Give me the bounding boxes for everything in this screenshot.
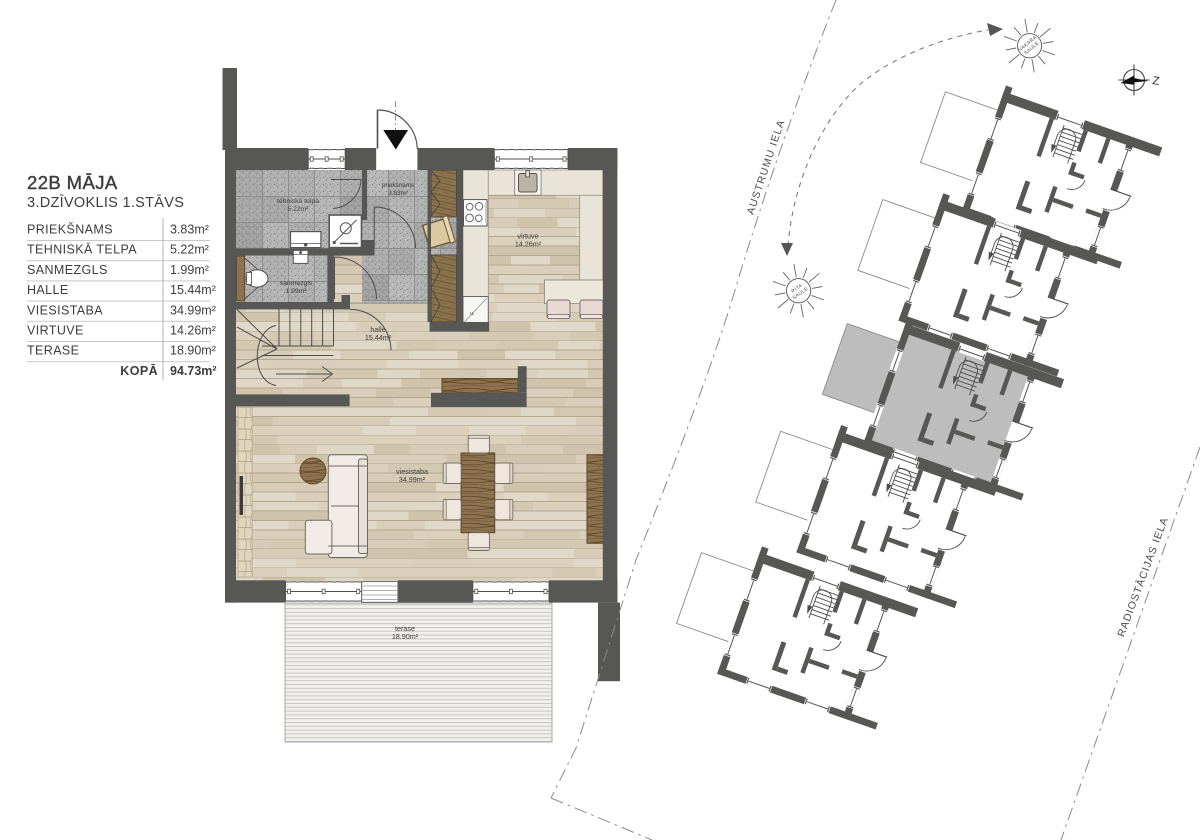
svg-text:14.26m²: 14.26m² xyxy=(170,324,216,338)
svg-text:5.22m²: 5.22m² xyxy=(170,243,209,257)
svg-text:HALLE: HALLE xyxy=(27,283,69,297)
svg-text:tehniskā telpa: tehniskā telpa xyxy=(277,198,319,205)
svg-text:5.22m²: 5.22m² xyxy=(287,206,309,213)
svg-text:KOPĀ: KOPĀ xyxy=(120,364,158,378)
svg-text:PRIEKŠNAMS: PRIEKŠNAMS xyxy=(27,222,113,237)
svg-text:34.99m²: 34.99m² xyxy=(170,303,216,317)
svg-text:priekšnams: priekšnams xyxy=(382,182,414,189)
svg-text:VIESISTABA: VIESISTABA xyxy=(27,303,103,317)
svg-text:1.99m²: 1.99m² xyxy=(170,263,209,277)
svg-text:18.90m²: 18.90m² xyxy=(170,344,216,358)
svg-text:22B MĀJA: 22B MĀJA xyxy=(27,172,118,193)
svg-text:3.DZĪVOKLIS 1.STĀVS: 3.DZĪVOKLIS 1.STĀVS xyxy=(27,195,184,211)
svg-text:u.: u. xyxy=(470,311,475,317)
svg-text:TEHNISKĀ TELPA: TEHNISKĀ TELPA xyxy=(27,243,137,257)
svg-text:3.83m²: 3.83m² xyxy=(388,190,408,197)
svg-text:14.26m²: 14.26m² xyxy=(515,240,542,249)
svg-text:94.73m²: 94.73m² xyxy=(170,364,217,378)
svg-text:15.44m²: 15.44m² xyxy=(170,283,216,297)
svg-text:VIRTUVE: VIRTUVE xyxy=(27,324,84,338)
svg-text:18.90m²: 18.90m² xyxy=(392,632,419,641)
svg-text:3.83m²: 3.83m² xyxy=(170,223,209,237)
svg-text:TERASE: TERASE xyxy=(27,344,79,358)
svg-text:SANMEZGLS: SANMEZGLS xyxy=(27,263,108,277)
svg-text:1.99m²: 1.99m² xyxy=(285,288,307,295)
svg-text:sanmezgls: sanmezgls xyxy=(280,280,313,287)
svg-text:15.44m²: 15.44m² xyxy=(365,333,392,342)
svg-text:34.99m²: 34.99m² xyxy=(399,475,426,484)
